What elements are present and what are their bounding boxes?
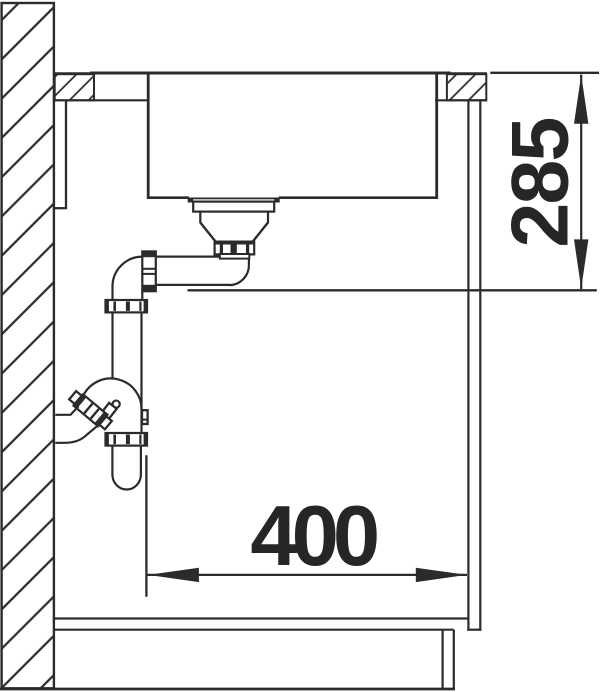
svg-text:285: 285 bbox=[495, 119, 585, 248]
svg-text:400: 400 bbox=[250, 489, 377, 584]
